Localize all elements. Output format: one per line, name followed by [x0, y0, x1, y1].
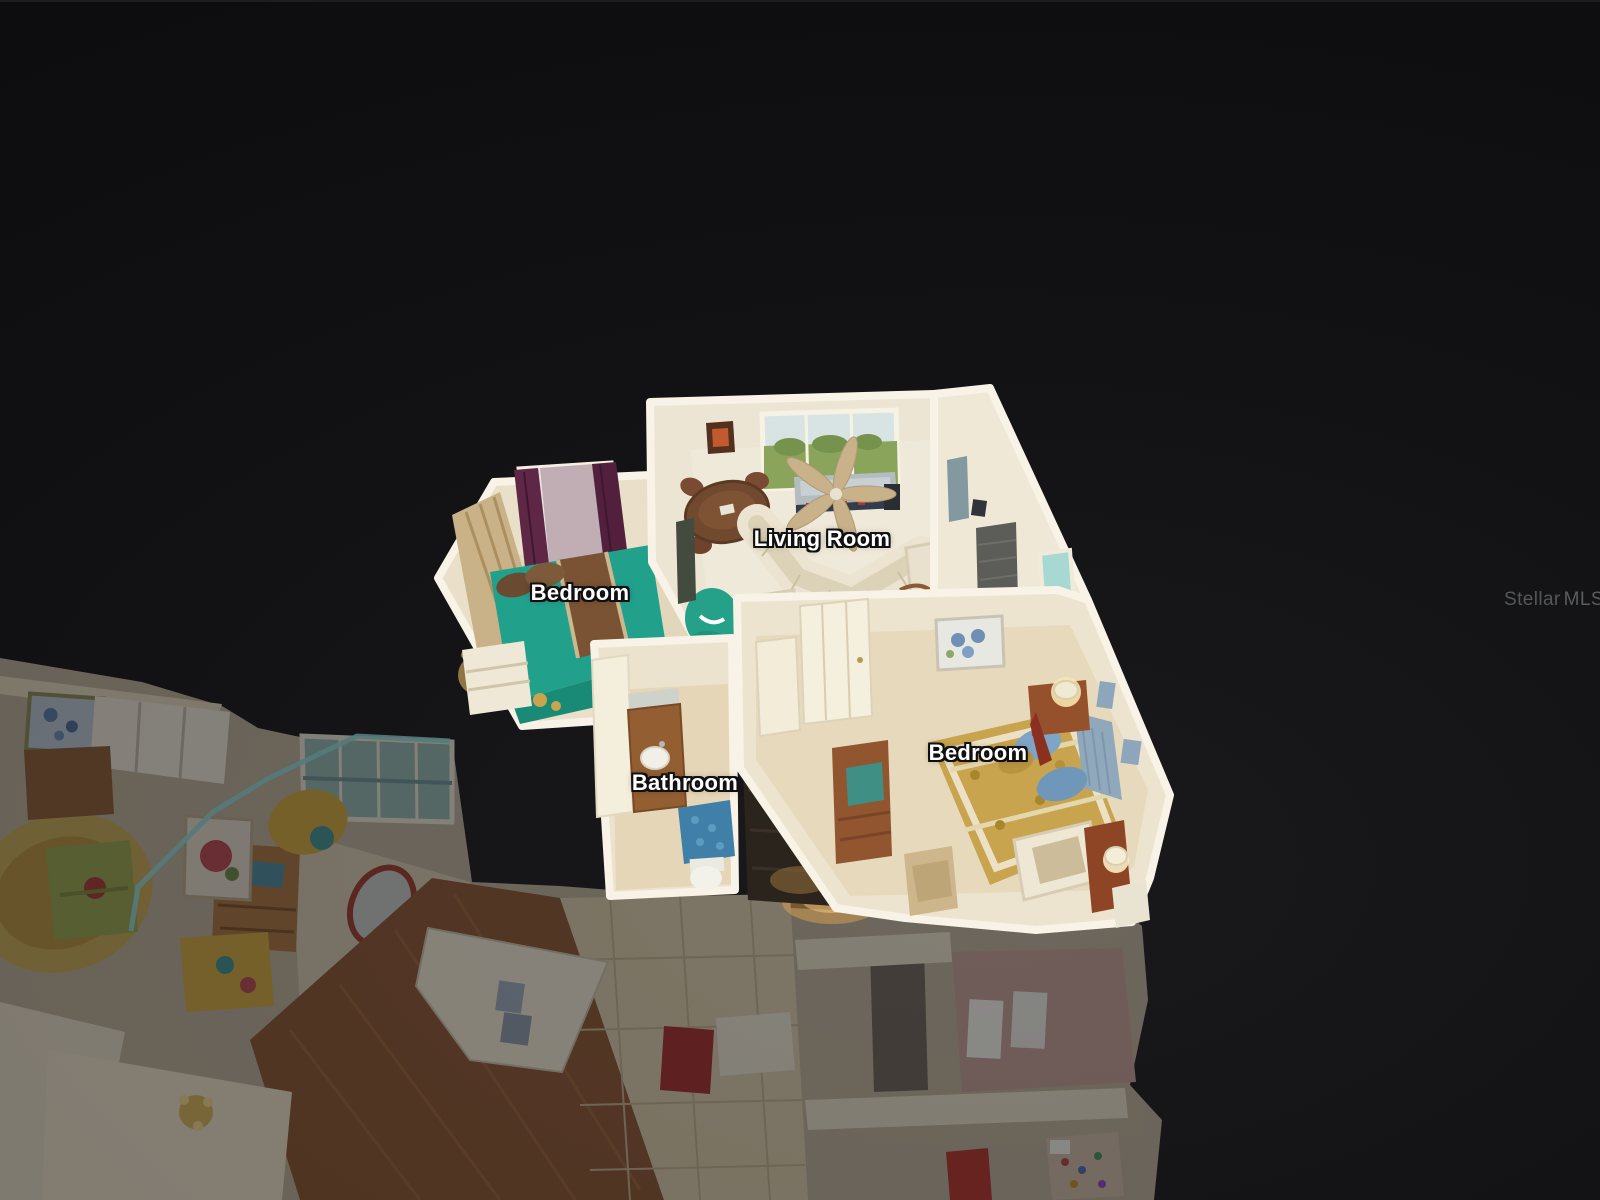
- living-room-dark-art: [676, 518, 696, 604]
- lower-dark-doorway: [870, 948, 928, 1092]
- lower-green-sofa: [46, 840, 138, 940]
- watermark-suffix: MLS: [1564, 589, 1600, 610]
- lower-dresser-left: [24, 746, 114, 820]
- lower-quilt-bed: [1046, 1132, 1124, 1200]
- bathroom-room: [592, 638, 735, 896]
- lower-white-counter: [716, 1012, 795, 1076]
- hallway-dark-frame: [971, 499, 987, 517]
- bedroom-2-flower-art: [936, 616, 1004, 670]
- lower-appliance-2: [1011, 991, 1048, 1049]
- room-label-bedroom-2[interactable]: Bedroom: [929, 740, 1028, 766]
- hallway-art-icon: [947, 456, 969, 522]
- living-room-art-icon: [706, 421, 735, 454]
- room-label-bedroom-1[interactable]: Bedroom: [531, 580, 630, 606]
- room-label-bathroom[interactable]: Bathroom: [632, 770, 738, 796]
- bathroom-rug: [678, 800, 735, 864]
- bedroom-2-white-chest: [1112, 880, 1150, 928]
- lower-yellow-chaise: [180, 932, 274, 1012]
- bedroom-2-dresser: [832, 740, 892, 864]
- lower-red-pillow: [946, 1148, 992, 1200]
- lower-appliance-1: [967, 999, 1004, 1059]
- bedroom-2-chair: [904, 846, 958, 916]
- dollhouse-3d-view[interactable]: Living RoomBedroomBathroomBedroom Stella…: [0, 0, 1600, 1200]
- watermark-brand: Stellar: [1504, 589, 1561, 610]
- bedroom-2-door-leaf: [756, 637, 800, 736]
- bedroom-2-frame-2: [1120, 739, 1141, 765]
- watermark: StellarMLS: [1504, 590, 1600, 609]
- upper-floor: [438, 388, 1170, 930]
- lower-red-cabinet: [660, 1026, 714, 1094]
- room-label-living-room[interactable]: Living Room: [754, 526, 891, 552]
- dollhouse-scene: [0, 0, 1600, 1200]
- bathroom-door: [592, 655, 633, 817]
- hallway-room: [934, 388, 1088, 610]
